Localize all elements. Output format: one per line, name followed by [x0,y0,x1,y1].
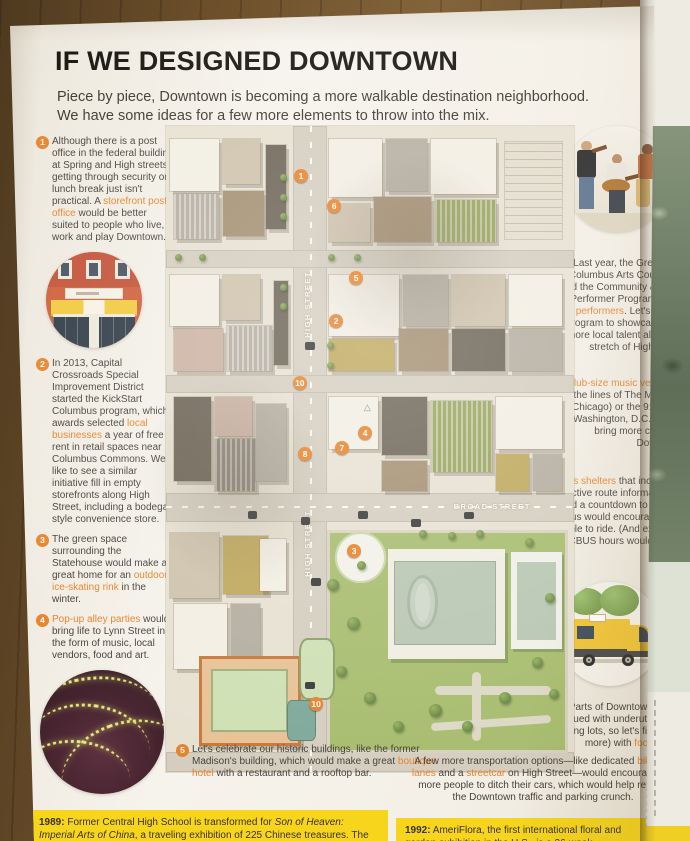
map-badge-6: 6 [327,199,341,213]
callout-10: 10A few more transportation options—like… [410,756,676,804]
callout-number-badge: 4 [36,614,49,627]
timeline-year: 1992: [405,825,431,836]
map-badge-5: 5 [349,271,363,285]
callout-number-badge: 2 [36,358,49,371]
callout-number-badge: 3 [36,534,49,547]
left-column: 1Although there is a post office in the … [36,136,174,794]
storefront-post-office-illustration [46,252,142,348]
map-number-badges: 165210478310 [166,126,574,772]
magazine-page: IF WE DESIGNED DOWNTOWN Piece by piece, … [0,0,690,841]
callout-number-badge: 1 [36,136,49,149]
callout-number-badge: 5 [176,744,189,757]
timeline-bar-1992: 1992: AmeriFlora, the first internationa… [396,818,646,841]
map-badge-7: 7 [335,441,349,455]
map-badge-1: 1 [294,169,308,183]
callout-5: 5Let's celebrate our historic buildings,… [176,744,444,780]
callout-text: Pop-up alley parties would bring life to… [52,614,169,661]
downtown-map-illustration: HIGH STREET HIGH STREET BROAD STREET 165… [166,126,574,772]
map-badge-10: 10 [293,376,307,390]
callout-text: In 2013, Capital Crossroads Special Impr… [52,358,173,525]
intro-text: Piece by piece, Downtown is becoming a m… [57,88,609,125]
page-title: IF WE DESIGNED DOWNTOWN [55,46,458,77]
callout-text: The green space surrounding the Statehou… [52,534,168,605]
map-badge-2: 2 [329,314,343,328]
callout-text: Although there is a post office in the f… [52,136,174,243]
callout-text: Let's celebrate our historic buildings, … [192,744,436,779]
map-badge-3: 3 [347,544,361,558]
callout-1: 1Although there is a post office in the … [36,136,174,244]
callout-text: A few more transportation options—like d… [412,756,668,803]
page-curl-shadow [640,0,656,841]
wood-table-background: IF WE DESIGNED DOWNTOWN Piece by piece, … [0,0,690,841]
alley-party-lights-photo [40,670,164,794]
map-badge-4: 4 [358,426,372,440]
timeline-bar-1989: 1989: Former Central High School is tran… [30,810,388,841]
callout-2: 2In 2013, Capital Crossroads Special Imp… [36,358,174,526]
map-badge-10: 10 [309,697,323,711]
timeline-year: 1989: [39,817,65,828]
callout-3: 3The green space surrounding the Stateho… [36,534,174,606]
callout-4: 4Pop-up alley parties would bring life t… [36,614,174,662]
map-badge-8: 8 [298,447,312,461]
